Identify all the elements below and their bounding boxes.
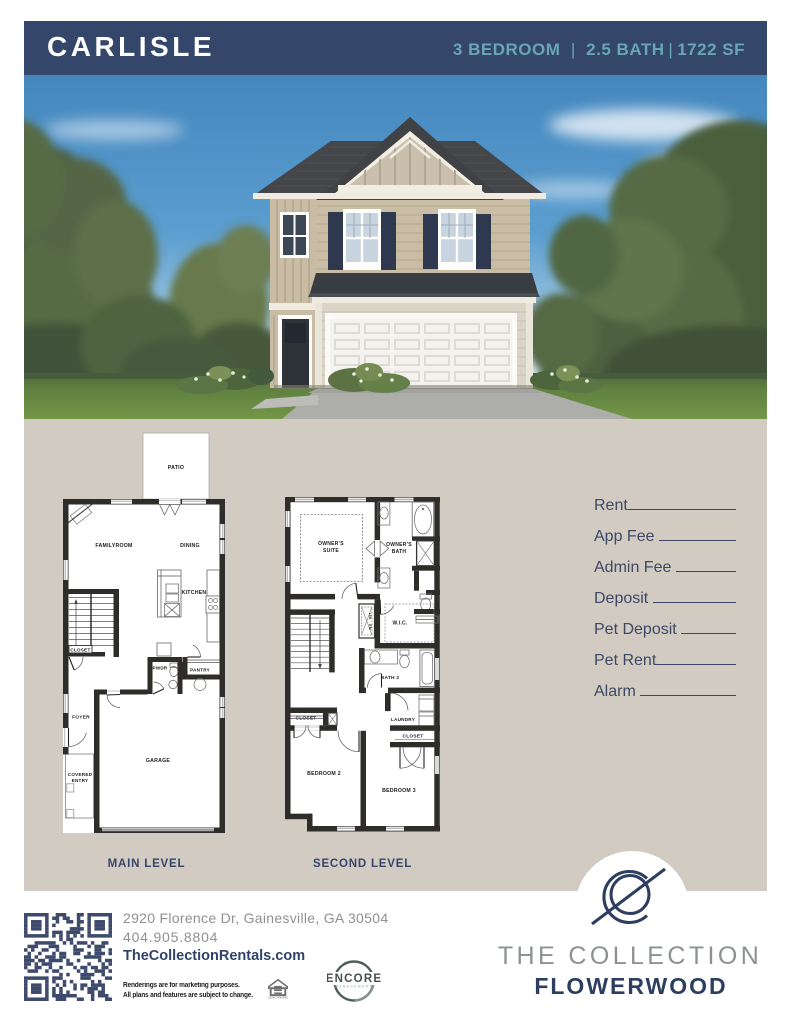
svg-text:OWNER’S: OWNER’S [318, 541, 344, 547]
svg-text:MANAGEMENT: MANAGEMENT [335, 985, 373, 989]
svg-text:GARAGE: GARAGE [146, 758, 171, 764]
svg-text:PANTRY: PANTRY [190, 668, 210, 673]
svg-text:ENTRY: ENTRY [72, 778, 89, 783]
svg-text:SUITE: SUITE [323, 548, 339, 554]
svg-text:PWDR: PWDR [152, 666, 167, 671]
svg-text:BATH: BATH [392, 549, 407, 555]
svg-text:BEDROOM 2: BEDROOM 2 [307, 771, 341, 777]
svg-text:PATIO: PATIO [168, 465, 184, 471]
svg-text:CLOSET: CLOSET [403, 734, 424, 740]
svg-text:EQUAL HOUSING: EQUAL HOUSING [268, 996, 288, 999]
svg-text:ENCORE: ENCORE [327, 973, 381, 985]
svg-text:DINING: DINING [180, 543, 200, 549]
svg-text:CLOSET: CLOSET [70, 648, 90, 653]
svg-text:KITCHEN: KITCHEN [182, 590, 207, 596]
svg-text:EN: EN [368, 624, 372, 630]
svg-text:LIN: LIN [368, 613, 372, 620]
svg-text:W.I.C.: W.I.C. [392, 621, 407, 627]
svg-text:OWNER’S: OWNER’S [386, 542, 412, 548]
svg-text:COVERED: COVERED [68, 772, 93, 777]
svg-text:FOYER: FOYER [72, 715, 90, 721]
svg-text:FAMILYROOM: FAMILYROOM [95, 543, 132, 549]
svg-text:BATH 2: BATH 2 [381, 675, 400, 681]
svg-text:BEDROOM 3: BEDROOM 3 [382, 788, 416, 794]
svg-text:LAUNDRY: LAUNDRY [391, 717, 415, 722]
